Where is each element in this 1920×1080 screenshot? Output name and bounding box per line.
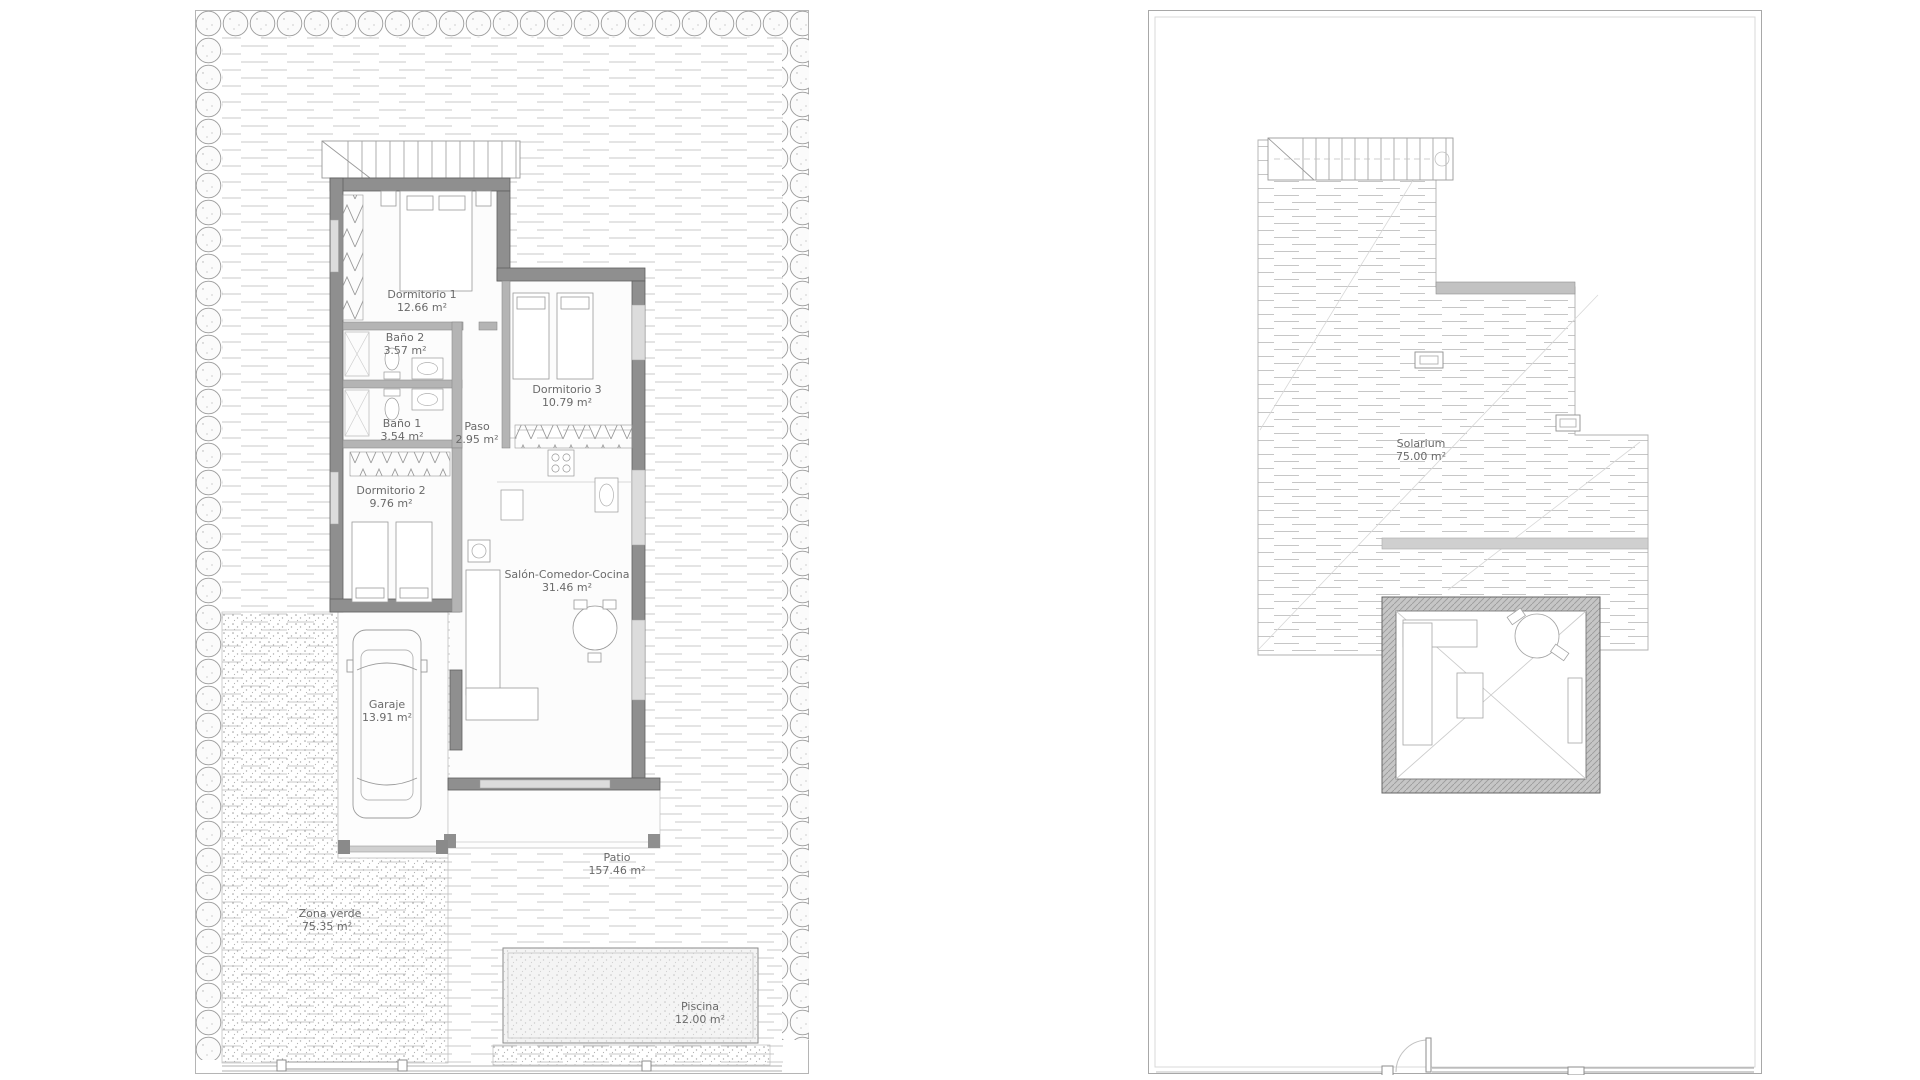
hedge-right	[782, 38, 809, 1040]
room-labels: Solarium 75.00 m²	[1396, 437, 1446, 463]
room-area-patio: 157.46 m²	[588, 864, 645, 877]
coffee-table-icon	[1457, 673, 1483, 718]
side-table-icon	[468, 540, 490, 562]
ground-floor-plan: Dormitorio 1 12.66 m² Baño 2 3.57 m² Bañ…	[195, 10, 810, 1075]
room-area-dormitorio-1: 12.66 m²	[397, 301, 447, 314]
stove-icon	[548, 450, 574, 476]
room-area-zona-verde: 75.35 m²	[302, 920, 352, 933]
solarium-plan: Solarium 75.00 m²	[1148, 10, 1762, 1075]
kitchen-island	[501, 490, 523, 520]
sink-icon	[412, 358, 443, 379]
room-area-dormitorio-3: 10.79 m²	[542, 396, 592, 409]
room-area-garaje: 13.91 m²	[362, 711, 412, 724]
single-bed-icon	[513, 293, 549, 379]
wardrobe-dormitorio-3	[515, 425, 632, 448]
room-area-solarium: 75.00 m²	[1396, 450, 1446, 463]
room-label-garaje: Garaje	[369, 698, 406, 711]
pool	[503, 948, 758, 1043]
floorplan-sheet: { "sheet": { "description": "Villa floor…	[0, 0, 1920, 1080]
room-label-patio: Patio	[604, 851, 631, 864]
wardrobe-dormitorio-1	[343, 195, 363, 320]
sink-icon	[412, 389, 443, 410]
entry-stairs	[322, 141, 520, 178]
pool-deck	[493, 1045, 770, 1065]
stair-tower-block	[1382, 597, 1600, 793]
room-label-salon: Salón-Comedor-Cocina	[504, 568, 629, 581]
room-area-piscina: 12.00 m²	[675, 1013, 725, 1026]
room-label-dormitorio-2: Dormitorio 2	[356, 484, 425, 497]
room-label-piscina: Piscina	[681, 1000, 719, 1013]
roof-vent-icon	[1556, 415, 1580, 431]
parapet-band	[1382, 538, 1648, 549]
wardrobe-dormitorio-2	[350, 452, 450, 476]
car-icon	[347, 630, 427, 818]
parapet-band	[1436, 282, 1575, 294]
room-area-paso: 2.95 m²	[455, 433, 498, 446]
toilet-icon	[384, 389, 400, 420]
single-bed-icon	[557, 293, 593, 379]
single-bed-icon	[396, 522, 432, 602]
bench-icon	[1568, 678, 1582, 743]
room-area-bano-2: 3.57 m²	[383, 344, 426, 357]
room-label-bano-2: Baño 2	[386, 331, 424, 344]
hedge-left	[196, 38, 223, 1060]
room-area-dormitorio-2: 9.76 m²	[369, 497, 412, 510]
room-label-zona-verde: Zona verde	[299, 907, 362, 920]
single-bed-icon	[352, 522, 388, 602]
room-label-dormitorio-1: Dormitorio 1	[387, 288, 456, 301]
room-label-paso: Paso	[464, 420, 490, 433]
porch-terrace	[448, 790, 660, 848]
room-area-salon: 31.46 m²	[542, 581, 592, 594]
sofa-icon	[1403, 623, 1432, 745]
kitchen-sink-icon	[595, 478, 618, 512]
room-area-bano-1: 3.54 m²	[380, 430, 423, 443]
room-label-solarium: Solarium	[1397, 437, 1446, 450]
roof-stairs	[1268, 138, 1453, 180]
room-label-dormitorio-3: Dormitorio 3	[532, 383, 601, 396]
roof-vent-icon	[1415, 352, 1443, 368]
room-label-bano-1: Baño 1	[383, 417, 421, 430]
hedge-top	[196, 11, 808, 38]
